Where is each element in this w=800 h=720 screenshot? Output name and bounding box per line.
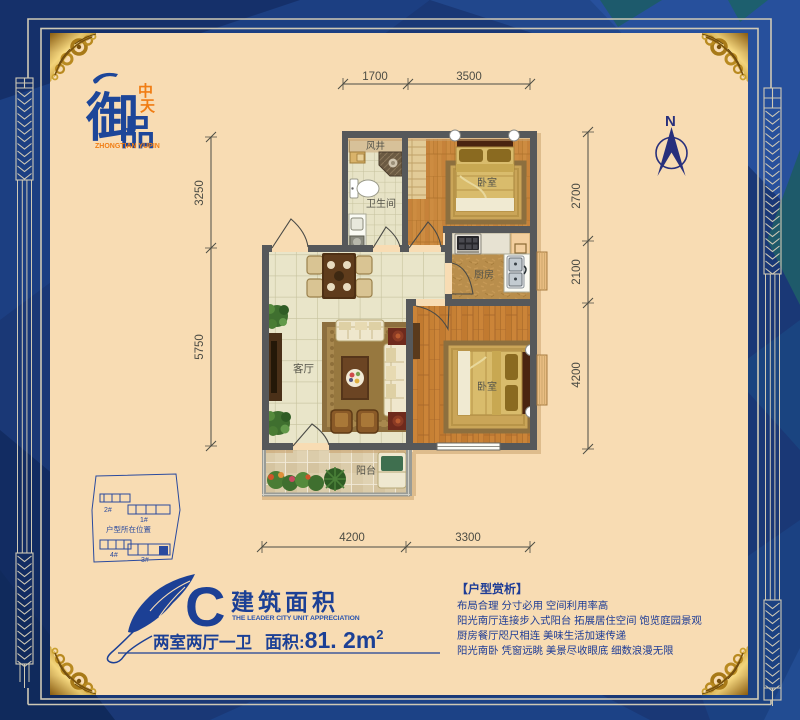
svg-text:2700: 2700	[571, 183, 583, 209]
svg-text:4200: 4200	[571, 362, 583, 388]
svg-text:5750: 5750	[194, 334, 206, 360]
svg-text:阳台: 阳台	[356, 464, 376, 477]
svg-text:4#: 4#	[110, 552, 118, 559]
svg-text:ZHONGTIAN YUPIN: ZHONGTIAN YUPIN	[95, 143, 160, 150]
svg-text:卧室: 卧室	[477, 176, 497, 189]
svg-text:天: 天	[140, 98, 156, 115]
svg-text:1#: 1#	[140, 517, 148, 524]
svg-text:3300: 3300	[455, 532, 481, 544]
svg-text:THE LEADER CITY UNIT APPRECIAT: THE LEADER CITY UNIT APPRECIATION	[232, 615, 360, 622]
svg-text:建筑面积: 建筑面积	[231, 589, 339, 615]
svg-text:【户型赏析】: 【户型赏析】	[456, 581, 528, 596]
svg-text:4200: 4200	[339, 532, 365, 544]
svg-text:1700: 1700	[362, 71, 388, 83]
svg-text:两室两厅一卫: 两室两厅一卫	[153, 632, 252, 652]
svg-text:2100: 2100	[571, 259, 583, 285]
svg-text:布局合理 分寸必用 空间利用率高: 布局合理 分寸必用 空间利用率高	[457, 599, 608, 612]
svg-text:C: C	[185, 575, 225, 638]
svg-text:厨房: 厨房	[474, 268, 494, 281]
svg-text:客厅: 客厅	[293, 362, 314, 375]
svg-text:户型所在位置: 户型所在位置	[106, 524, 151, 534]
svg-text:2#: 2#	[104, 507, 112, 514]
svg-text:3250: 3250	[194, 180, 206, 206]
svg-text:3500: 3500	[456, 71, 482, 83]
svg-text:3#: 3#	[141, 557, 149, 564]
svg-text:N: N	[665, 113, 676, 130]
svg-text:阳光南卧 凭窗远眺 美景尽收眼底 细数浪漫无限: 阳光南卧 凭窗远眺 美景尽收眼底 细数浪漫无限	[457, 644, 674, 657]
svg-text:卫生间: 卫生间	[366, 197, 396, 210]
svg-text:阳光南厅连接步入式阳台 拓展居住空间 饱览庭园景观: 阳光南厅连接步入式阳台 拓展居住空间 饱览庭园景观	[457, 614, 702, 627]
svg-text:卧室: 卧室	[477, 380, 497, 393]
svg-text:厨房餐厅咫尺相连 美味生活加速传递: 厨房餐厅咫尺相连 美味生活加速传递	[457, 629, 627, 642]
svg-text:风井: 风井	[366, 140, 385, 152]
